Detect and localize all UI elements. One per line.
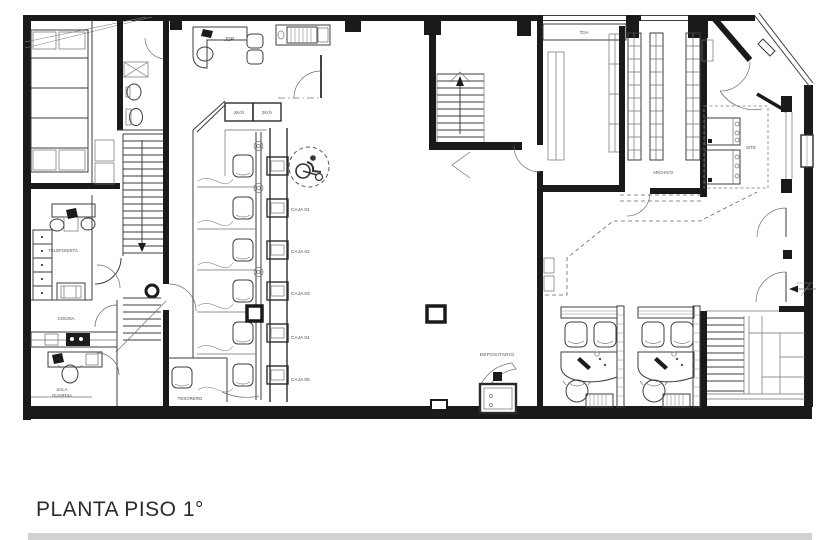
guard-chair: [58, 365, 82, 383]
room-label-archivo: ARCHIVO: [653, 170, 674, 175]
room-label-jop: JOP: [223, 37, 234, 43]
archivo-room: ARCHIVO: [619, 26, 707, 216]
jop-door: [278, 55, 321, 98]
switchback-stairs: [707, 316, 805, 399]
door-arc: [145, 38, 166, 59]
sala-guardia-room: SALA GUARDIA: [31, 352, 119, 398]
workstation-left: [561, 307, 617, 407]
kitchen-counter: [31, 332, 117, 347]
cabinet-label-kch-left: 2Kch: [234, 110, 245, 115]
teller-label-caja01: CAJA 01: [291, 207, 310, 213]
jop-desk: [193, 27, 263, 68]
column: [247, 306, 262, 321]
top-window-right: [641, 14, 688, 22]
kch-cabinets: 2Kch 2Kch: [225, 103, 281, 121]
wall-equipment: [544, 258, 554, 291]
arrow-down-icon: [138, 140, 146, 252]
guard-desk: [48, 352, 102, 367]
central-stairwell: [429, 34, 522, 178]
tda-counter: [548, 52, 564, 160]
teller-area: 2Kch 2Kch: [168, 101, 329, 402]
room-label-cocina: COCINA: [57, 316, 74, 321]
room-label-tesorero: TESORERO: [178, 396, 203, 401]
jop-office: JOP: [193, 25, 330, 98]
tda-area: TDA: [514, 18, 626, 406]
column: [146, 285, 158, 297]
bottom-wall-notch: [431, 400, 447, 410]
overhead-route-dashed: [545, 192, 757, 295]
room-label-guardia: GUARDIA: [52, 393, 72, 398]
top-window-left: [543, 14, 626, 22]
telefonista-desk: [50, 204, 95, 231]
door-arc: [627, 193, 650, 216]
teller-label-caja05: CAJA 05: [291, 377, 310, 383]
room-label-depositario: DEPOSITARIO: [480, 352, 515, 358]
room-label-tda: TDA: [580, 30, 589, 35]
depositario-safe: DEPOSITARIO: [480, 352, 516, 413]
file-cabinets: [33, 230, 52, 300]
landing-curve: [95, 258, 121, 284]
telefonista-room: TELEFONISTA: [33, 195, 120, 300]
door-arc: [169, 284, 196, 311]
wc-room: [117, 38, 169, 130]
door-arc-lower: [756, 272, 786, 302]
corner-diagonal-wall: [755, 13, 813, 87]
plan-title: PLANTA PISO 1°: [36, 498, 204, 521]
storage-shelving-room: [23, 18, 123, 189]
bottom-strip: [28, 533, 812, 540]
toilet-icon: [126, 109, 143, 126]
room-label-telefonista: TELEFONISTA: [48, 248, 78, 253]
workstation-right: [638, 307, 694, 407]
stove-icon: [66, 333, 90, 346]
ramp-mark: [452, 152, 470, 178]
rail-posts: [254, 142, 263, 277]
door-arc: [97, 265, 120, 288]
wc-shelf: [124, 62, 148, 77]
teller-label-caja04: CAJA 04: [291, 335, 310, 341]
door-arc: [97, 353, 119, 375]
door-arc-upper: [757, 208, 786, 237]
floor-plan-drawing: TELEFONISTA COCINA SALA GUARDIA: [0, 0, 835, 540]
printer-table: [57, 283, 85, 300]
site-area: SITE: [704, 106, 768, 188]
sink-icon: [126, 84, 141, 100]
printer-station: [276, 25, 330, 45]
bottom-right-rooms: [700, 208, 816, 407]
overhead-dashed: [620, 195, 702, 201]
cocina-room: COCINA: [31, 300, 117, 406]
hall-column: [427, 306, 445, 322]
room-label-site: SITE: [746, 145, 756, 150]
door-arc: [95, 305, 117, 327]
teller-chairs: [233, 155, 253, 386]
server-racks: [705, 118, 740, 184]
teller-label-caja02: CAJA 02: [291, 249, 310, 255]
room-label-sala: SALA: [56, 387, 67, 392]
left-stairs: [95, 18, 196, 406]
partition-left: [617, 306, 624, 407]
teller-label-caja03: CAJA 03: [291, 291, 310, 297]
wheelchair-icon: [289, 147, 329, 187]
tesorero-station: TESORERO: [168, 358, 259, 402]
cabinet-label-kch-right: 2Kch: [262, 110, 273, 115]
archive-shelves: [628, 33, 700, 160]
entry-vestibule: [702, 17, 813, 193]
floor-plan-sheet: TELEFONISTA COCINA SALA GUARDIA: [0, 0, 835, 540]
